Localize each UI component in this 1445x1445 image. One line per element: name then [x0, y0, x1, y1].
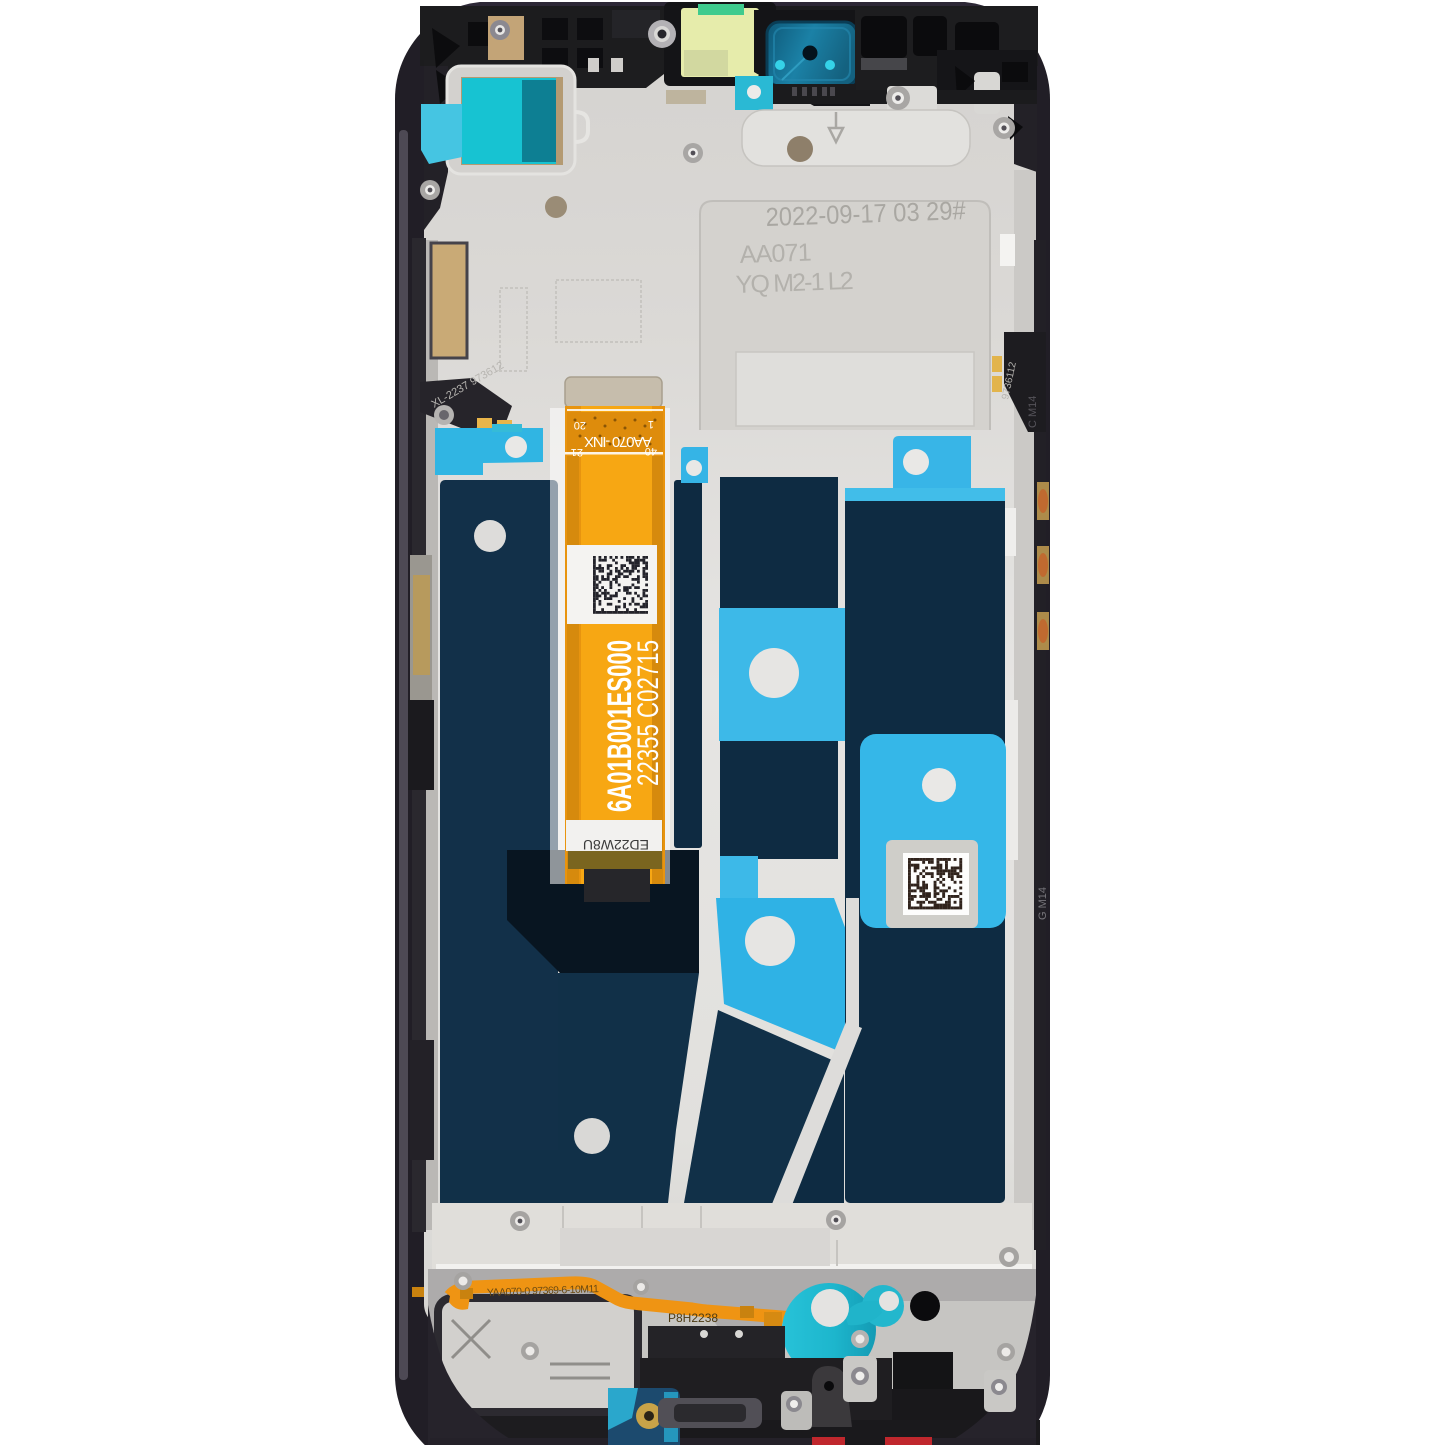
svg-text:ED22W8U: ED22W8U: [583, 837, 649, 853]
svg-text:AA071: AA071: [739, 239, 812, 269]
svg-text:AA070 -INX: AA070 -INX: [584, 433, 652, 450]
svg-text:G M14: G M14: [1037, 887, 1049, 920]
svg-text:YQ M2-1 L2: YQ M2-1 L2: [735, 267, 854, 299]
svg-text:P8H2238: P8H2238: [668, 1311, 718, 1325]
svg-text:20: 20: [574, 419, 586, 431]
svg-text:C M14: C M14: [1027, 396, 1039, 428]
svg-text:22355 C02715: 22355 C02715: [632, 640, 665, 786]
svg-text:1: 1: [648, 418, 654, 430]
svg-text:40: 40: [645, 445, 657, 457]
